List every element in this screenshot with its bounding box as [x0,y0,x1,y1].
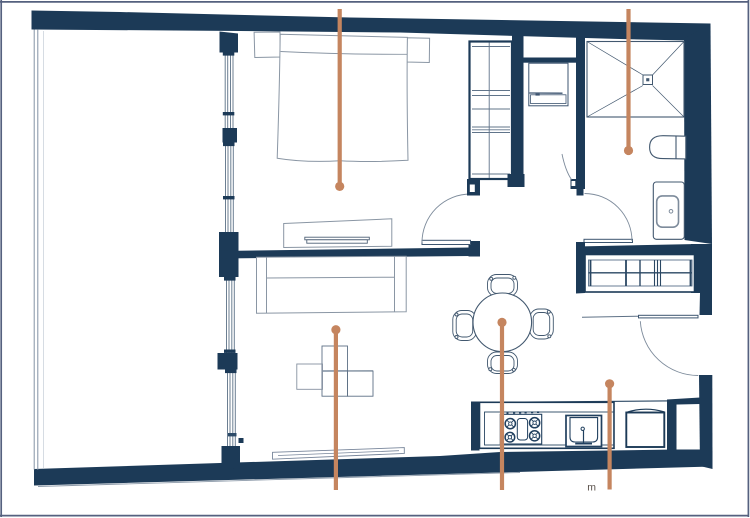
svg-text:m: m [587,481,596,493]
